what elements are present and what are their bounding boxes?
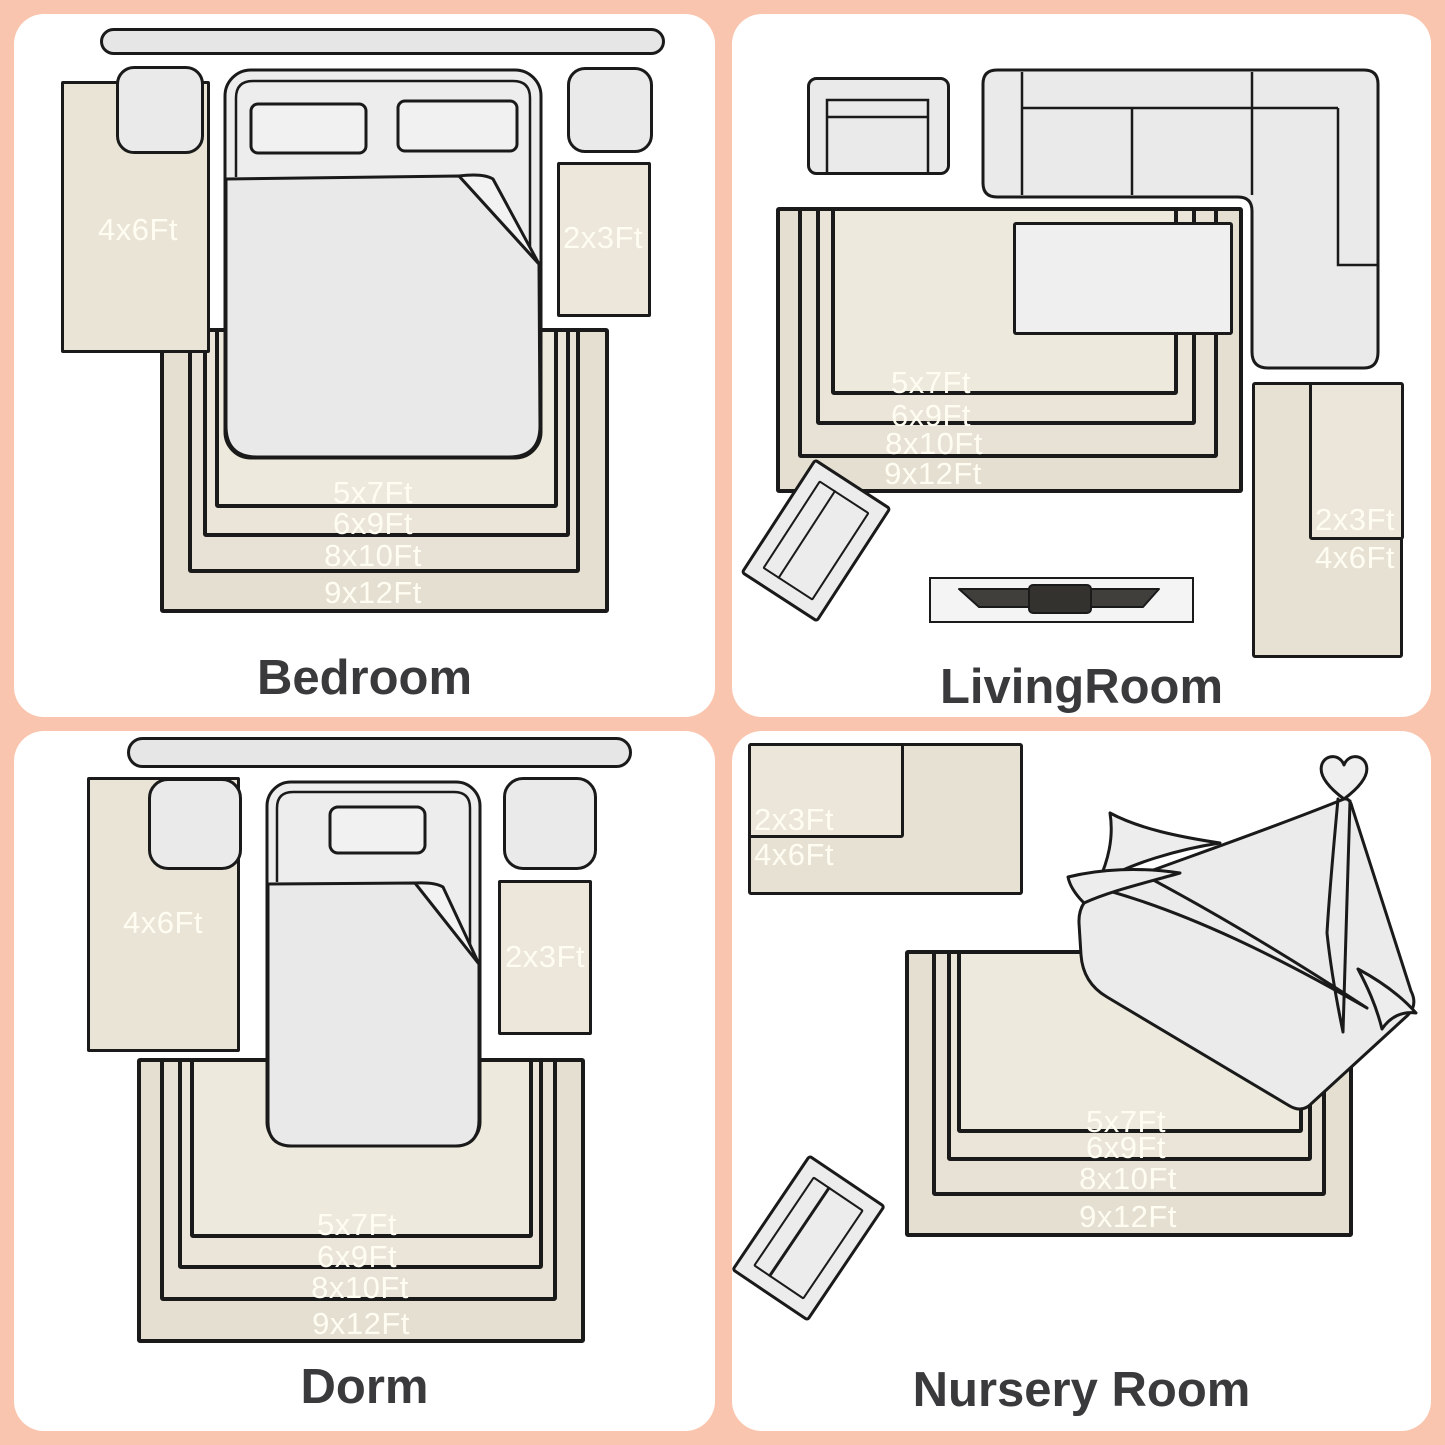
rug-size-label: 2x3Ft: [563, 220, 643, 256]
rug-size-label: 2x3Ft: [1315, 502, 1395, 538]
nightstand-icon: [148, 778, 242, 870]
rug-size-label: 8x10Ft: [324, 538, 422, 574]
tv-console-icon: [929, 577, 1194, 623]
rug-size-label: 5x7Ft: [317, 1207, 397, 1243]
tilted-rug-icon: [731, 1154, 886, 1322]
nightstand-icon: [503, 777, 597, 870]
heart-knot-icon: [1321, 757, 1367, 799]
rug-size-label: 9x12Ft: [1079, 1199, 1177, 1235]
panel-title: LivingRoom: [732, 657, 1431, 717]
rug-size-label: 8x10Ft: [311, 1270, 409, 1306]
livingroom-panel: 5x7Ft 6x9Ft 8x10Ft 9x12Ft 2x3Ft 4x6Ft Li…: [732, 14, 1431, 717]
rug-size-label: 9x12Ft: [312, 1306, 410, 1342]
blanket-icon: [1050, 743, 1422, 1123]
rug-size-label: 8x10Ft: [1079, 1161, 1177, 1197]
sofa-icon: [981, 68, 1380, 370]
bedroom-panel: 4x6Ft 2x3Ft 5x7Ft 6x9Ft 8x10Ft 9x12Ft Be…: [14, 14, 715, 717]
rug-size-label: 5x7Ft: [891, 365, 971, 401]
bed-sheet: [226, 176, 540, 457]
rug-size-label: 4x6Ft: [754, 837, 834, 873]
dorm-panel: 4x6Ft 2x3Ft 5x7Ft 6x9Ft 8x10Ft 9x12Ft Do…: [14, 731, 715, 1431]
headboard-icon: [100, 28, 665, 55]
tilted-rug-border: [762, 480, 870, 601]
panel-title: Nursery Room: [732, 1360, 1431, 1420]
panel-title: Bedroom: [14, 648, 715, 708]
rug-size-label: 4x6Ft: [98, 212, 178, 248]
rug-size-label: 9x12Ft: [324, 575, 422, 611]
tv-icon: [931, 579, 1191, 620]
nursery-panel: 2x3Ft 4x6Ft 5x7Ft 6x9Ft 8x10Ft 9x12Ft Nu…: [732, 731, 1431, 1431]
rug-size-label: 4x6Ft: [123, 905, 203, 941]
pillow-icon: [330, 807, 425, 853]
tilted-rug-border: [753, 1176, 864, 1300]
rug-size-label: 2x3Ft: [505, 939, 585, 975]
nightstand-icon: [567, 67, 653, 153]
headboard-icon: [127, 737, 632, 768]
armchair-icon: [807, 77, 950, 175]
bed-icon: [265, 780, 482, 1148]
rug-size-label: 4x6Ft: [1315, 540, 1395, 576]
rug-size-label: 2x3Ft: [754, 802, 834, 838]
pillow-icon: [398, 101, 517, 151]
rug-size-label: 9x12Ft: [884, 456, 982, 492]
panel-title: Dorm: [14, 1357, 715, 1417]
rug-size-label: 6x9Ft: [333, 506, 413, 542]
nightstand-icon: [116, 66, 204, 154]
bed-icon: [223, 68, 543, 460]
pillow-icon: [251, 104, 366, 153]
